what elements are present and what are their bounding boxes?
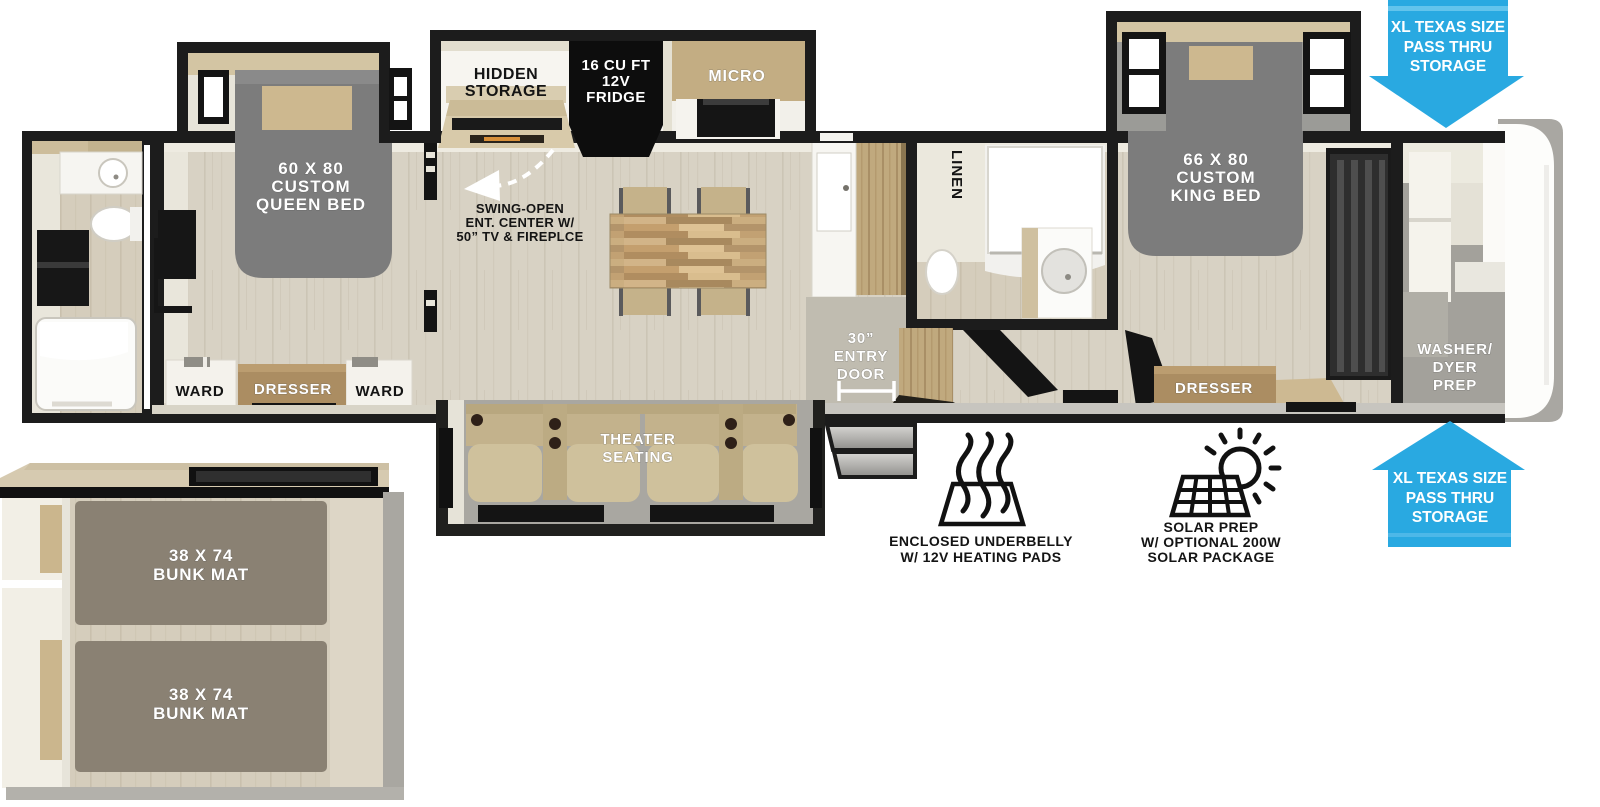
svg-text:PASS THRU: PASS THRU — [1406, 490, 1494, 507]
svg-text:CUSTOM: CUSTOM — [271, 177, 350, 196]
svg-text:38 X 74: 38 X 74 — [169, 546, 233, 565]
svg-text:ENTRY: ENTRY — [834, 348, 888, 365]
svg-text:BUNK MAT: BUNK MAT — [153, 565, 249, 584]
svg-text:DOOR: DOOR — [837, 366, 885, 383]
svg-text:PREP: PREP — [1433, 377, 1477, 394]
svg-text:XL TEXAS SIZE: XL TEXAS SIZE — [1393, 470, 1507, 487]
svg-text:MICRO: MICRO — [708, 68, 765, 85]
svg-text:SOLAR PACKAGE: SOLAR PACKAGE — [1147, 549, 1274, 565]
svg-text:XL TEXAS SIZE: XL TEXAS SIZE — [1391, 19, 1505, 36]
svg-text:W/ 12V HEATING PADS: W/ 12V HEATING PADS — [900, 549, 1061, 565]
svg-text:QUEEN BED: QUEEN BED — [256, 195, 366, 214]
svg-text:ENCLOSED UNDERBELLY: ENCLOSED UNDERBELLY — [889, 533, 1073, 549]
svg-text:FRIDGE: FRIDGE — [586, 89, 646, 106]
svg-text:LINEN: LINEN — [948, 150, 965, 200]
svg-text:16 CU FT: 16 CU FT — [581, 57, 650, 74]
svg-text:50” TV & FIREPLCE: 50” TV & FIREPLCE — [456, 229, 583, 244]
svg-text:SEATING: SEATING — [602, 449, 673, 466]
svg-text:WASHER/: WASHER/ — [1417, 341, 1493, 358]
svg-text:38 X 74: 38 X 74 — [169, 685, 233, 704]
svg-text:30”: 30” — [848, 330, 875, 347]
svg-text:HIDDEN: HIDDEN — [474, 66, 538, 83]
svg-text:WARD: WARD — [175, 383, 224, 400]
svg-text:STORAGE: STORAGE — [1412, 509, 1488, 526]
svg-text:W/ OPTIONAL 200W: W/ OPTIONAL 200W — [1141, 534, 1281, 550]
svg-text:BUNK MAT: BUNK MAT — [153, 704, 249, 723]
svg-text:DYER: DYER — [1433, 359, 1478, 376]
svg-text:PASS THRU: PASS THRU — [1404, 39, 1492, 56]
svg-text:STORAGE: STORAGE — [465, 83, 547, 100]
svg-text:THEATER: THEATER — [600, 431, 675, 448]
svg-text:WARD: WARD — [355, 383, 404, 400]
svg-text:CUSTOM: CUSTOM — [1176, 168, 1255, 187]
svg-text:STORAGE: STORAGE — [1410, 58, 1486, 75]
svg-text:SOLAR PREP: SOLAR PREP — [1163, 519, 1258, 535]
svg-text:12V: 12V — [602, 73, 630, 90]
svg-text:SWING-OPEN: SWING-OPEN — [476, 201, 564, 216]
svg-text:DRESSER: DRESSER — [254, 381, 332, 398]
svg-text:66 X 80: 66 X 80 — [1183, 150, 1249, 169]
svg-text:60 X 80: 60 X 80 — [278, 159, 344, 178]
svg-text:DRESSER: DRESSER — [1175, 380, 1253, 397]
svg-text:ENT. CENTER W/: ENT. CENTER W/ — [466, 215, 575, 230]
svg-text:KING BED: KING BED — [1170, 186, 1261, 205]
